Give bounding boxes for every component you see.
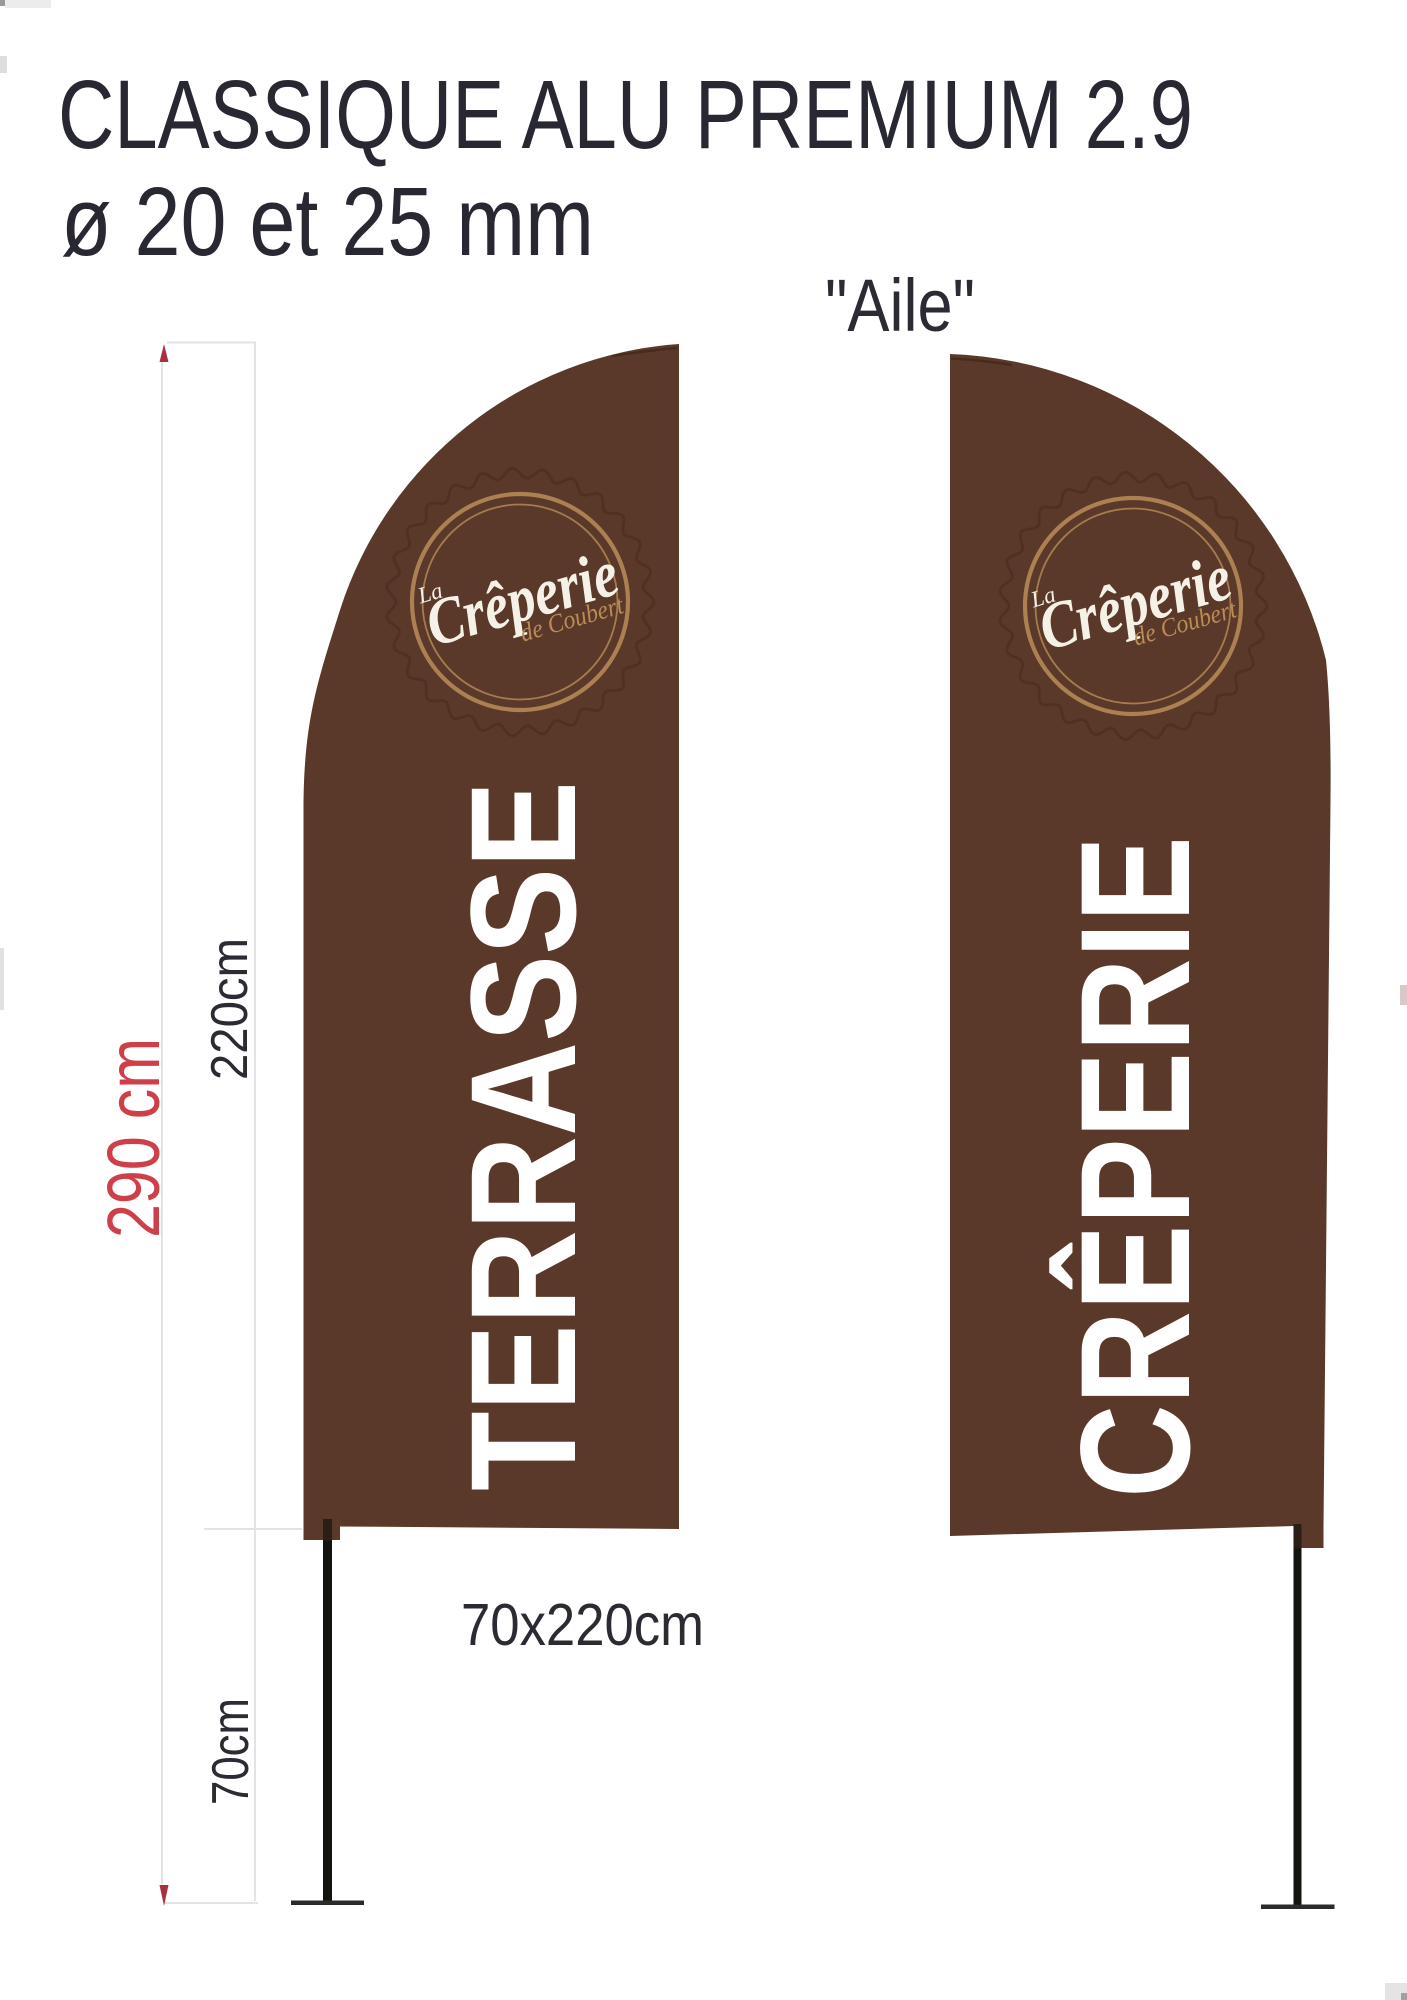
svg-text:290 cm: 290 cm <box>92 1038 175 1238</box>
svg-text:CRÊPERIE: CRÊPERIE <box>1049 836 1223 1498</box>
svg-text:220cm: 220cm <box>201 938 259 1080</box>
svg-text:CLASSIQUE ALU PREMIUM 2.9: CLASSIQUE ALU PREMIUM 2.9 <box>58 60 1193 169</box>
svg-text:70cm: 70cm <box>202 1698 260 1805</box>
svg-text:TERRASSE: TERRASSE <box>439 781 607 1491</box>
svg-text:"Aile": "Aile" <box>825 264 975 347</box>
svg-text:70x220cm: 70x220cm <box>461 1592 704 1658</box>
svg-text:ø 20 et 25 mm: ø 20 et 25 mm <box>61 167 594 276</box>
